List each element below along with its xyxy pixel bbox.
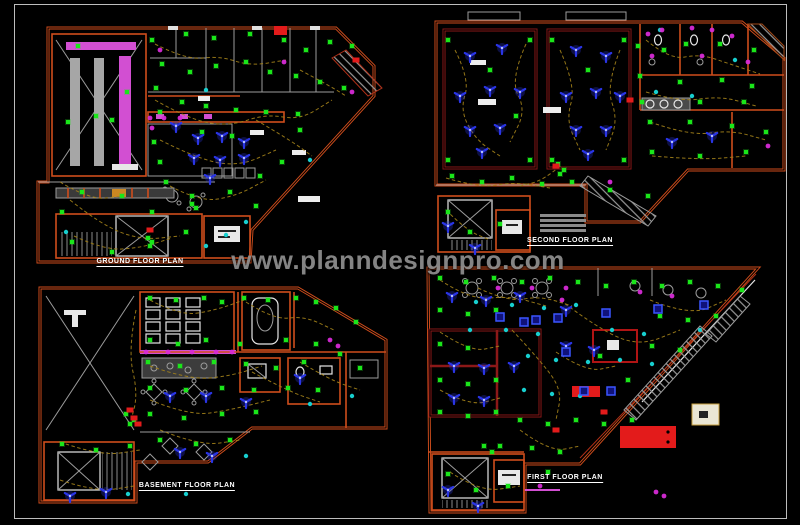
second-floor-plan <box>436 12 784 254</box>
floor-plan-label-ground: GROUND FLOOR PLAN <box>96 258 183 267</box>
ground-top-rooms <box>148 26 334 96</box>
watermark-text: www.planndesignpro.com <box>231 245 565 276</box>
cad-sheet: GROUND FLOOR PLAN SECOND FLOOR PLAN BASE… <box>0 0 800 525</box>
floor-plan-label-basement: BASEMENT FLOOR PLAN <box>139 482 235 491</box>
basement-floor-plan <box>40 288 386 502</box>
ground-floor-plan <box>38 26 382 262</box>
lift-box <box>498 470 520 485</box>
ground-ramp-hall <box>52 34 146 176</box>
basement-stairs <box>44 442 134 500</box>
ground-electrical-symbols <box>59 31 360 255</box>
lift-box <box>502 220 522 234</box>
basement-open-area <box>46 296 134 430</box>
second-toilet-cluster <box>640 24 784 168</box>
second-escalator-top <box>748 24 784 60</box>
first-escalators <box>624 280 755 420</box>
red-equipment-mark <box>274 26 287 35</box>
floor-plan-label-first: FIRST FLOOR PLAN <box>527 474 603 483</box>
